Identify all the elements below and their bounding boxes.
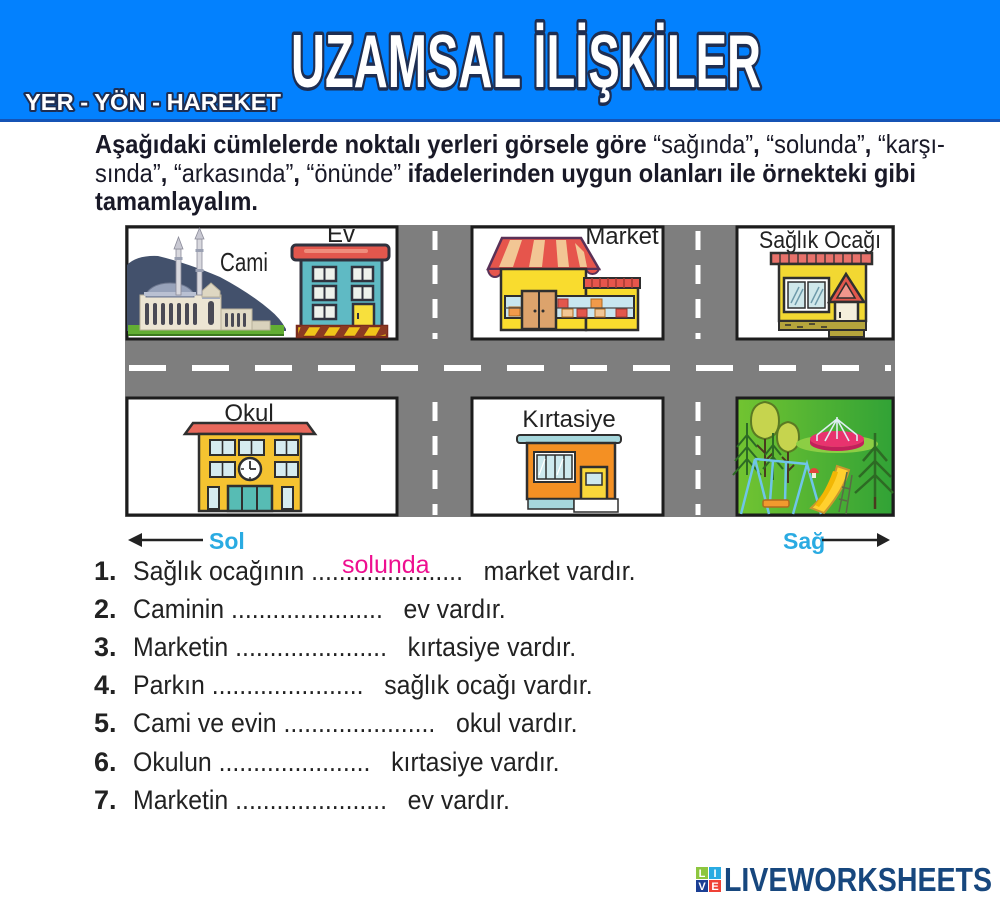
svg-text:Market: Market [585,225,659,250]
svg-text:UZAMSAL İLİŞKİLER: UZAMSAL İLİŞKİLER [291,19,761,103]
svg-text:Kırtasiye: Kırtasiye [522,406,615,433]
svg-text:Sol: Sol [209,528,245,554]
svg-text:V: V [698,881,706,893]
svg-text:Sağlık Ocağı: Sağlık Ocağı [759,227,881,254]
svg-text:Cami: Cami [220,247,268,277]
svg-text:E: E [711,881,718,893]
svg-text:YER - YÖN - HAREKET: YER - YÖN - HAREKET [25,89,281,115]
svg-text:LIVEWORKSHEETS: LIVEWORKSHEETS [724,864,992,896]
svg-text:Sağ: Sağ [783,528,825,554]
svg-text:L: L [699,868,706,880]
svg-text:I: I [713,868,716,880]
